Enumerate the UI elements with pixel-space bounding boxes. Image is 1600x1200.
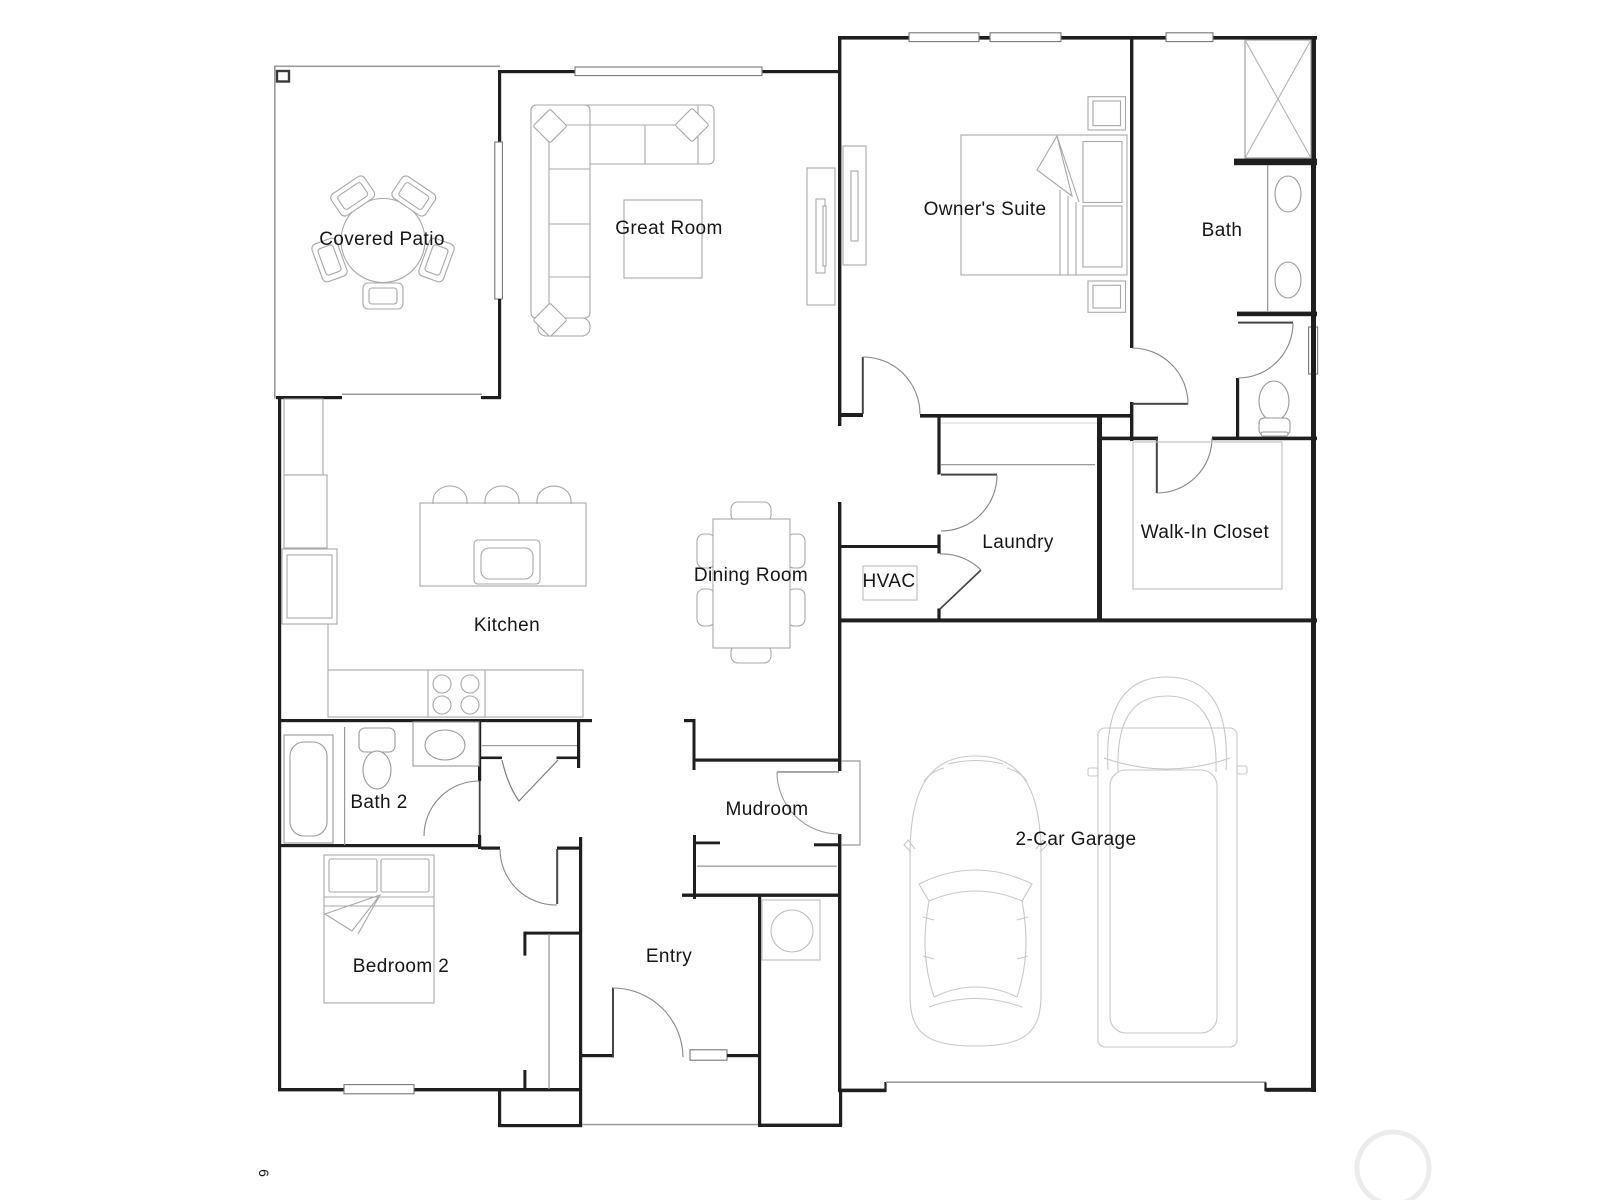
svg-text:Great Room: Great Room [615,218,722,239]
svg-text:Dining Room: Dining Room [694,565,808,586]
svg-text:Covered Patio: Covered Patio [319,229,445,250]
svg-text:Bedroom 2: Bedroom 2 [353,956,450,977]
svg-text:Entry: Entry [646,946,692,967]
svg-text:HVAC: HVAC [863,571,916,592]
svg-text:Walk-In Closet: Walk-In Closet [1141,522,1270,543]
svg-text:6: 6 [256,1169,272,1177]
svg-text:Kitchen: Kitchen [474,615,540,636]
svg-text:Owner's Suite: Owner's Suite [924,199,1047,220]
svg-text:Laundry: Laundry [982,532,1054,553]
svg-text:Bath 2: Bath 2 [350,792,407,813]
svg-text:Bath: Bath [1202,220,1243,241]
svg-text:Mudroom: Mudroom [725,799,808,820]
svg-text:2-Car Garage: 2-Car Garage [1016,829,1137,850]
